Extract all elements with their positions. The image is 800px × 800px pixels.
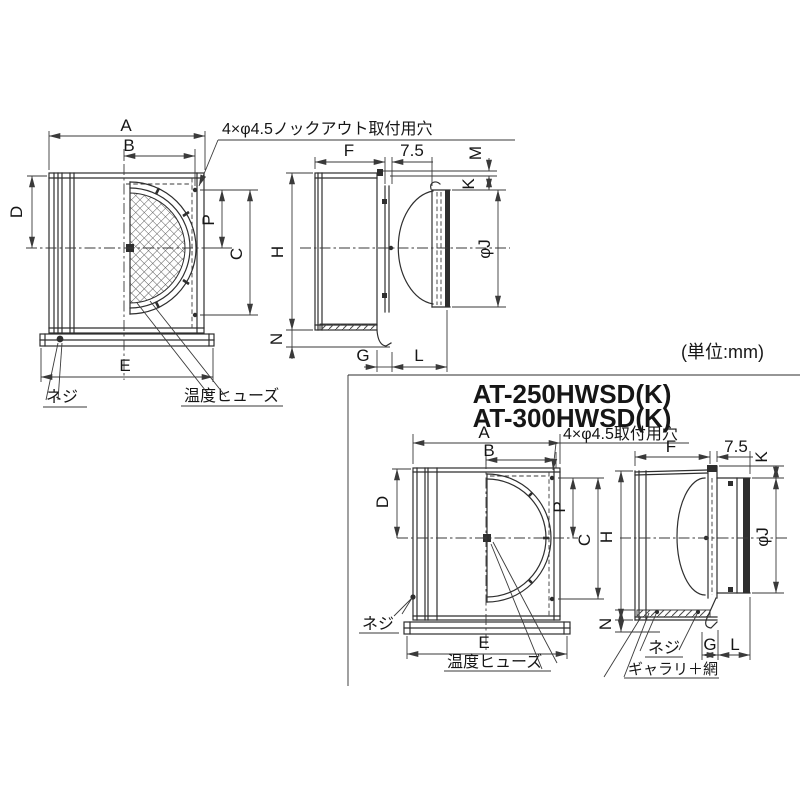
dim-label-l: L xyxy=(730,635,739,654)
screw xyxy=(655,610,659,614)
dim-label-7-5: 7.5 xyxy=(724,437,748,456)
dim-label-c: C xyxy=(227,248,246,260)
dim-label-h: H xyxy=(268,246,287,258)
dim-label-k: K xyxy=(752,451,771,463)
dim-label-phij: φJ xyxy=(753,527,772,547)
dim-label-m: M xyxy=(466,146,485,160)
mounting-hole-callout: 4×φ4.5取付用穴 xyxy=(563,425,678,443)
dim-label-c: C xyxy=(575,534,594,546)
dim-label-k: K xyxy=(459,178,478,190)
dim-label-n: N xyxy=(267,333,286,345)
gallery-mesh-label: ギャラリ＋網 xyxy=(628,661,718,678)
screw-label: ネジ xyxy=(362,615,394,633)
gallery-strip xyxy=(320,324,377,330)
bottom-side-view: F 7.5 K φJ H N G L ネジ xyxy=(596,437,790,678)
mounting-hole xyxy=(193,313,197,317)
top-side-view: F 7.5 M K φJ H N G L xyxy=(267,141,510,372)
dim-label-d: D xyxy=(7,206,26,218)
dim-label-b: B xyxy=(483,441,494,460)
knockout-hole-callout: 4×φ4.5ノックアウト取付用穴 xyxy=(222,120,433,138)
dim-label-f: F xyxy=(666,437,676,456)
dim-label-a: A xyxy=(120,116,132,135)
mounting-hole xyxy=(193,188,197,192)
dim-label-f: F xyxy=(344,141,354,160)
dim-label-b: B xyxy=(123,136,134,155)
dome-profile xyxy=(398,191,433,304)
top-front-view: A B D P C E 4×φ4.5ノックアウト取付用穴 ネジ 温度ヒューズ xyxy=(7,116,515,407)
screw xyxy=(696,610,700,614)
dim-label-7-5: 7.5 xyxy=(400,141,424,160)
dim-label-p: P xyxy=(550,501,569,512)
dim-label-n: N xyxy=(596,618,615,630)
dim-label-g: G xyxy=(356,346,369,365)
dome-profile xyxy=(677,478,705,595)
screw xyxy=(57,336,64,343)
dim-label-e: E xyxy=(478,633,489,652)
drip-hook xyxy=(377,330,391,346)
screw-label: ネジ xyxy=(46,388,78,406)
drawing-canvas: A B D P C E 4×φ4.5ノックアウト取付用穴 ネジ 温度ヒューズ xyxy=(0,0,800,800)
mounting-hole xyxy=(550,476,554,480)
dim-label-e: E xyxy=(119,356,130,375)
unit-note: (単位:mm) xyxy=(681,342,764,362)
thermal-fuse-label: 温度ヒューズ xyxy=(184,387,279,405)
thermal-fuse-label: 温度ヒューズ xyxy=(447,653,542,671)
technical-drawing-page: A B D P C E 4×φ4.5ノックアウト取付用穴 ネジ 温度ヒューズ xyxy=(0,0,800,800)
dim-label-p: P xyxy=(199,214,218,225)
dim-label-g: G xyxy=(703,635,716,654)
mounting-hole xyxy=(550,597,554,601)
dim-label-a: A xyxy=(478,423,490,442)
dim-label-phij: φJ xyxy=(475,239,494,259)
dim-label-d: D xyxy=(373,496,392,508)
dim-label-l: L xyxy=(414,346,423,365)
dim-label-h: H xyxy=(597,531,616,543)
screw-label: ネジ xyxy=(648,639,680,657)
